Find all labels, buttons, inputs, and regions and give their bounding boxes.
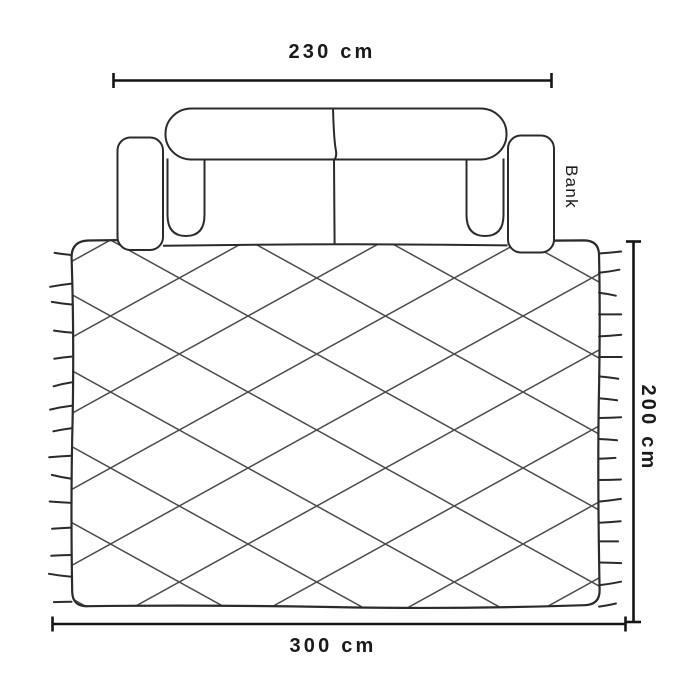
rug-tassel [54, 382, 72, 386]
rug-tassel [52, 475, 72, 479]
rug-fringe-right [599, 252, 622, 607]
rug-tassel [599, 335, 621, 337]
rug [49, 239, 622, 609]
rug-tassel [599, 499, 621, 502]
dimension-sofa-width [114, 73, 552, 88]
rug-tassel [50, 502, 72, 503]
rug-tassel [50, 406, 71, 410]
rug-depth-label: 200 cm [637, 384, 659, 471]
rug-tassel [599, 563, 621, 564]
sofa-inner-armrest-left [168, 159, 205, 237]
rug-tassel [52, 302, 72, 305]
sofa-inner-armrest-right [467, 159, 504, 237]
rug-tassel [599, 439, 617, 440]
rug-tassel [599, 582, 621, 586]
rug-tassel [52, 528, 71, 529]
rug-tassel [54, 331, 72, 333]
rug-tassel [599, 398, 617, 400]
rug-tassel [599, 521, 621, 523]
sofa [118, 109, 555, 253]
sofa-rug-diagram: 230 cm 300 cm 200 cm Bank [0, 0, 700, 700]
rug-tassel [599, 480, 621, 481]
rug-tassel [54, 357, 71, 359]
rug-fringe-left [49, 253, 72, 602]
rug-tassel [599, 458, 615, 459]
rug-tassel [599, 376, 618, 378]
rug-tassel [599, 293, 616, 296]
sofa-armrest-left [118, 138, 164, 251]
rug-tassel [599, 604, 616, 607]
rug-diamond-pattern [70, 239, 602, 609]
rug-tassel [599, 252, 621, 254]
rug-tassel [49, 574, 72, 577]
diagram-canvas: 230 cm 300 cm 200 cm Bank [0, 0, 700, 700]
rug-width-label: 300 cm [289, 635, 376, 657]
dimension-rug-width [53, 617, 626, 632]
rug-tassel [55, 253, 72, 255]
rug-tassel [49, 456, 71, 458]
rug-tassel [599, 417, 621, 418]
rug-tassel [53, 428, 71, 431]
rug-tassel [50, 284, 71, 287]
rug-tassel [51, 555, 71, 556]
sofa-seat-divider [334, 160, 335, 245]
sofa-armrest-right [508, 136, 554, 253]
sofa-name-label: Bank [562, 165, 581, 209]
sofa-width-label: 230 cm [288, 41, 375, 63]
rug-tassel [599, 270, 619, 273]
